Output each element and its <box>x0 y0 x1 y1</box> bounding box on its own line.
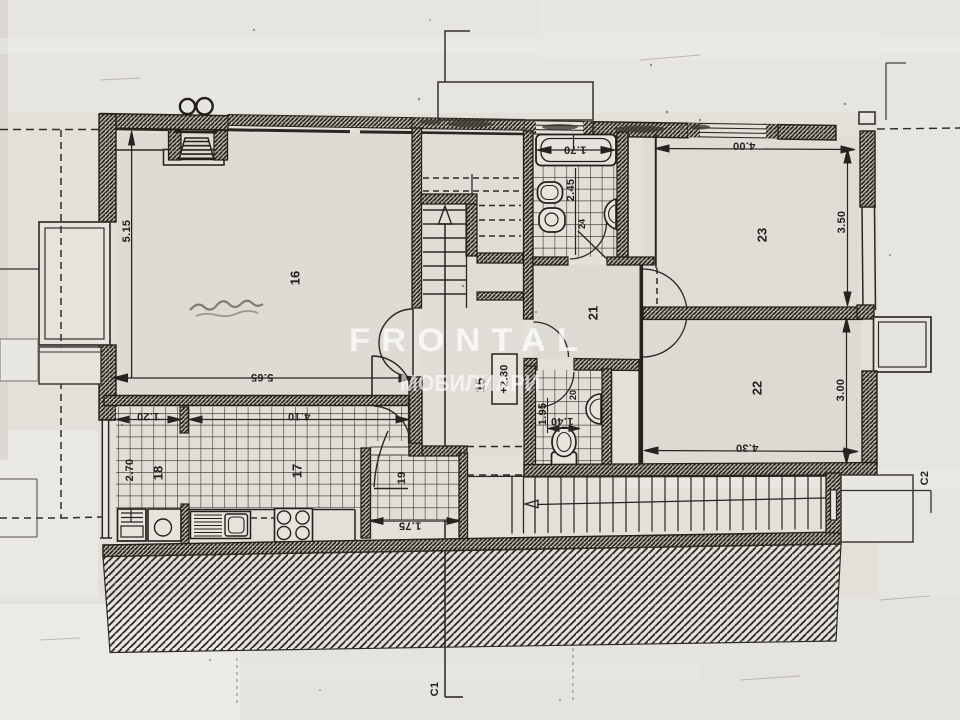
svg-text:1.40: 1.40 <box>551 415 574 427</box>
svg-text:22: 22 <box>750 381 765 395</box>
svg-text:2.45: 2.45 <box>565 179 577 202</box>
svg-text:2.70: 2.70 <box>124 459 136 482</box>
svg-text:4.00: 4.00 <box>733 140 756 152</box>
svg-text:3.00: 3.00 <box>835 379 847 402</box>
svg-text:1.20: 1.20 <box>137 410 160 422</box>
svg-text:4.10: 4.10 <box>288 410 311 422</box>
svg-text:C2: C2 <box>919 471 931 486</box>
svg-text:4.30: 4.30 <box>736 442 759 454</box>
svg-text:C1: C1 <box>429 682 441 697</box>
svg-text:FRONTAL: FRONTAL <box>349 322 589 358</box>
svg-text:20: 20 <box>568 390 578 400</box>
svg-text:5.15: 5.15 <box>121 220 133 243</box>
svg-text:19: 19 <box>396 472 408 485</box>
svg-text:21: 21 <box>586 306 601 320</box>
svg-text:23: 23 <box>755 228 770 242</box>
svg-text:1.95: 1.95 <box>537 403 549 426</box>
svg-text:5.65: 5.65 <box>251 371 274 383</box>
svg-text:17: 17 <box>290 464 305 478</box>
svg-text:1.75: 1.75 <box>399 520 422 532</box>
svg-text:1.70: 1.70 <box>564 144 587 156</box>
svg-text:24: 24 <box>577 219 587 229</box>
svg-text:3.50: 3.50 <box>836 211 848 234</box>
svg-text:18: 18 <box>151 466 166 480</box>
svg-text:16: 16 <box>288 271 303 285</box>
svg-text:МОБИЛИАРИ: МОБИЛИАРИ <box>400 370 540 396</box>
